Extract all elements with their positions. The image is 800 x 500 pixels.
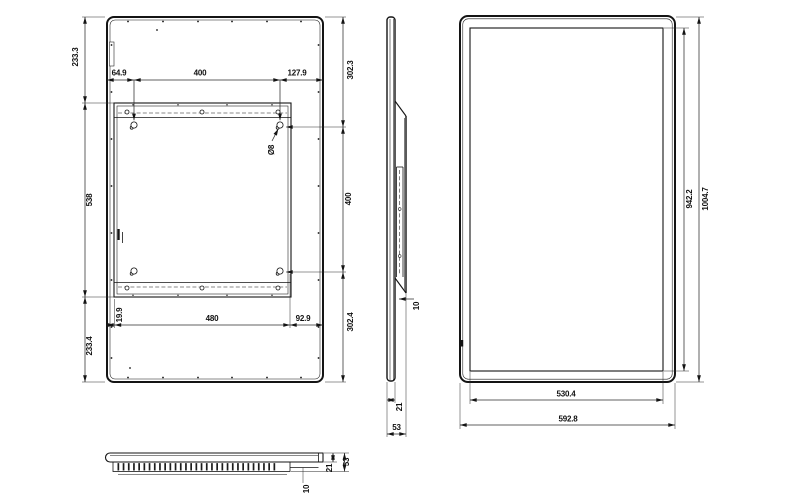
- cleat-bracket: [395, 101, 406, 293]
- keyhole-slot-top-right: [276, 122, 283, 129]
- dim-label-back-left-top: 233.3: [71, 47, 80, 67]
- side-dim-bracket-offset: 10: [399, 293, 421, 311]
- dim-label-side-thickness: 21: [395, 402, 404, 411]
- dim-label-hole-diameter: Ø8: [267, 144, 276, 155]
- mounting-plate: [114, 103, 291, 297]
- side-panel-outline: [387, 17, 395, 381]
- dim-label-bottom-vent-inset: 10: [302, 484, 311, 493]
- dim-label-front-overall-height: 1004.7: [701, 187, 710, 211]
- front-dim-widths: 530.4 592.8: [460, 372, 675, 429]
- dim-label-back-top-left: 64.9: [112, 69, 128, 78]
- mounting-plate-outline: [114, 103, 291, 297]
- dim-label-back-right-top: 302.3: [346, 60, 355, 80]
- vent-grille: [113, 462, 290, 475]
- drawing-canvas: Ø8 233.3 538 233.4 302.3 400 302.4: [0, 0, 800, 500]
- dim-label-front-screen-height: 942.2: [685, 189, 694, 209]
- dim-label-front-overall-width: 592.8: [558, 415, 578, 424]
- back-dim-left: 233.3 538 233.4: [71, 17, 116, 382]
- technical-drawing-page: Ø8 233.3 538 233.4 302.3 400 302.4: [0, 0, 800, 500]
- bottom-view: 10 21 53: [106, 453, 352, 493]
- dim-label-back-left-mid: 538: [85, 193, 94, 206]
- keyhole-slot-bottom-right: [276, 268, 283, 275]
- dim-label-back-bottom-left: 19.9: [115, 307, 124, 323]
- side-view: 10 21 53: [387, 17, 421, 437]
- dim-label-side-depth: 53: [392, 423, 401, 432]
- dim-label-front-screen-width: 530.4: [556, 390, 576, 399]
- dim-label-side-offset: 10: [412, 301, 421, 310]
- keyhole-slot-top-left: [130, 122, 137, 129]
- front-panel-outline: [460, 16, 675, 382]
- hole-diameter-callout: Ø8: [267, 129, 278, 155]
- mounting-plate-inner-edge: [117, 106, 288, 294]
- back-view: Ø8 233.3 538 233.4 302.3 400 302.4: [71, 17, 355, 382]
- dim-label-back-top-right: 127.9: [287, 69, 307, 78]
- front-view: 942.2 1004.7 530.4 592.8: [460, 16, 710, 429]
- screen-outline: [470, 28, 663, 371]
- dim-label-back-right-mid: 400: [344, 192, 353, 205]
- dim-label-back-top-mid: 400: [194, 69, 207, 78]
- bezel-button: [461, 340, 464, 347]
- keyhole-slot-bottom-left: [130, 268, 137, 275]
- front-dim-heights: 942.2 1004.7: [664, 17, 710, 382]
- dim-label-back-bottom-mid: 480: [206, 314, 219, 323]
- plate-edge-detail: [118, 229, 120, 240]
- bottom-panel-outline: [106, 453, 324, 462]
- dim-label-back-bottom-right: 92.9: [296, 314, 312, 323]
- front-bezel-edge: [463, 19, 672, 379]
- dim-label-bottom-thickness: 21: [325, 463, 334, 472]
- dim-label-back-left-bottom: 233.4: [85, 336, 94, 356]
- bottom-dim-depths: 21 53: [291, 453, 351, 472]
- dim-label-bottom-depth: 53: [342, 457, 351, 466]
- dim-label-back-right-bottom: 302.4: [346, 312, 355, 332]
